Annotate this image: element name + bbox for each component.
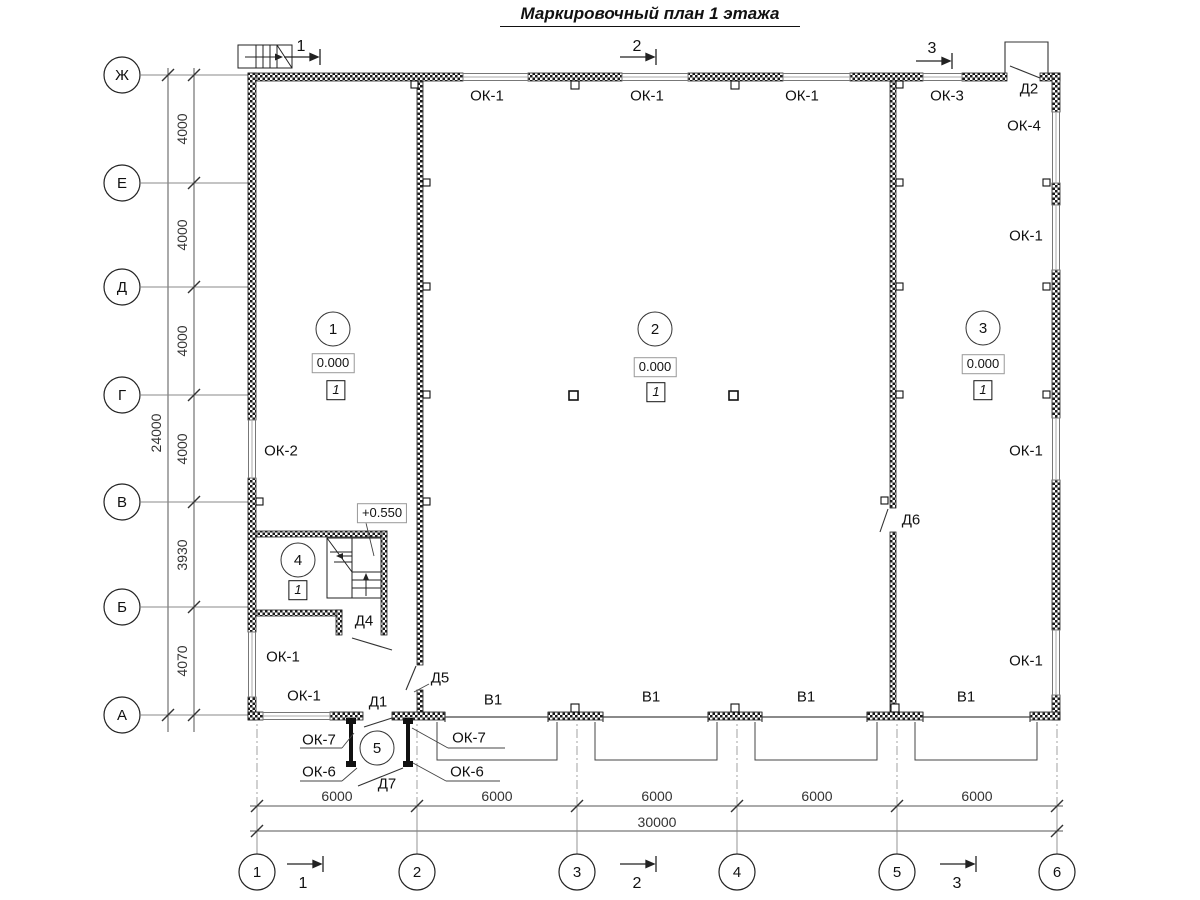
drawing-title: Маркировочный план 1 этажа [500,4,800,27]
window-mark-ok6-left: ОК-6 [302,765,336,780]
svg-text:Д: Д [117,279,127,296]
section-mark-bottom-2 [620,856,656,872]
finish-mark-room2: 1 [646,382,665,402]
room-numbers: 1 2 3 4 5 [294,320,987,757]
svg-text:3: 3 [979,320,987,337]
svg-text:1: 1 [329,321,337,338]
gate-mark-v1-4: В1 [957,690,975,705]
elevation-box-room2: 0.000 [634,357,677,377]
door-mark-d2: Д2 [1020,82,1039,97]
door-mark-d6: Д6 [902,513,921,528]
svg-text:30000: 30000 [638,814,677,830]
window-mark-ok7-left: ОК-7 [302,733,336,748]
section-mark-bottom-1 [287,856,323,872]
window-mark-ok3: ОК-3 [930,89,964,104]
svg-text:1: 1 [253,864,261,881]
floor-plan-drawing: 4000 4000 4000 4000 3930 4070 24000 6000… [0,0,1200,900]
gate-mark-v1-3: В1 [797,690,815,705]
elevation-box-room3: 0.000 [962,354,1005,374]
section-mark-numbers: 1 2 3 1 2 3 [297,38,962,892]
finish-mark-room1: 1 [326,380,345,400]
svg-text:6000: 6000 [321,788,352,804]
door-leaves [352,42,1048,786]
left-dimension-lines [168,68,194,732]
entrance-steps [238,45,292,68]
window-mark-ok1-right-2: ОК-1 [1009,444,1043,459]
door-mark-d1: Д1 [369,695,388,710]
svg-text:3: 3 [928,40,937,57]
svg-text:4070: 4070 [174,645,190,676]
svg-text:Ж: Ж [115,67,129,84]
svg-text:4000: 4000 [174,433,190,464]
axis-row-lines [141,75,250,715]
svg-text:6: 6 [1053,864,1061,881]
svg-text:А: А [117,707,127,724]
svg-text:24000: 24000 [148,413,164,452]
window-mark-ok1-bottom: ОК-1 [287,689,321,704]
door-mark-d7: Д7 [378,777,397,792]
svg-text:Е: Е [117,175,127,192]
window-mark-ok6-right: ОК-6 [450,765,484,780]
finish-mark-room3: 1 [973,380,992,400]
svg-text:1: 1 [299,875,308,892]
svg-text:4: 4 [294,552,302,569]
svg-text:6000: 6000 [961,788,992,804]
svg-text:3: 3 [573,864,581,881]
window-mark-ok4: ОК-4 [1007,119,1041,134]
svg-text:6000: 6000 [801,788,832,804]
bottom-dim-labels: 6000 6000 6000 6000 6000 30000 [321,788,992,830]
stair-room4 [327,538,381,598]
axis-circle-labels-bottom: 1 2 3 4 5 6 [253,864,1061,881]
svg-text:2: 2 [633,875,642,892]
axis-circles-bottom [239,854,1075,890]
window-mark-ok1-right-3: ОК-1 [1009,654,1043,669]
window-mark-ok1-top-2: ОК-1 [630,89,664,104]
door-mark-d5: Д5 [431,671,450,686]
svg-text:5: 5 [893,864,901,881]
svg-text:В: В [117,494,127,511]
elevation-box-stair: +0.550 [357,503,407,523]
svg-text:2: 2 [651,321,659,338]
svg-text:Г: Г [118,387,126,404]
gate-mark-v1-2: В1 [642,690,660,705]
window-mark-ok1-left: ОК-1 [266,650,300,665]
svg-text:5: 5 [373,740,381,757]
svg-text:4000: 4000 [174,113,190,144]
door-mark-d4: Д4 [355,614,374,629]
svg-text:2: 2 [633,38,642,55]
entrance-steps-arrowhead [275,54,283,61]
window-mark-ok1-right-1: ОК-1 [1009,229,1043,244]
gate-mark-v1-1: В1 [484,693,502,708]
section-mark-bottom-3 [940,856,976,872]
window-mark-ok2: ОК-2 [264,444,298,459]
svg-text:4000: 4000 [174,219,190,250]
window-mark-ok1-top-1: ОК-1 [470,89,504,104]
svg-text:4: 4 [733,864,741,881]
svg-text:6000: 6000 [641,788,672,804]
window-mark-ok1-top-3: ОК-1 [785,89,819,104]
svg-text:1: 1 [297,38,306,55]
window-mark-ok7-right: ОК-7 [452,731,486,746]
elevation-box-room1: 0.000 [312,353,355,373]
finish-mark-room4: 1 [288,580,307,600]
svg-text:3930: 3930 [174,539,190,570]
svg-text:Б: Б [117,599,127,616]
svg-text:6000: 6000 [481,788,512,804]
svg-text:4000: 4000 [174,325,190,356]
svg-text:3: 3 [953,875,962,892]
svg-text:2: 2 [413,864,421,881]
